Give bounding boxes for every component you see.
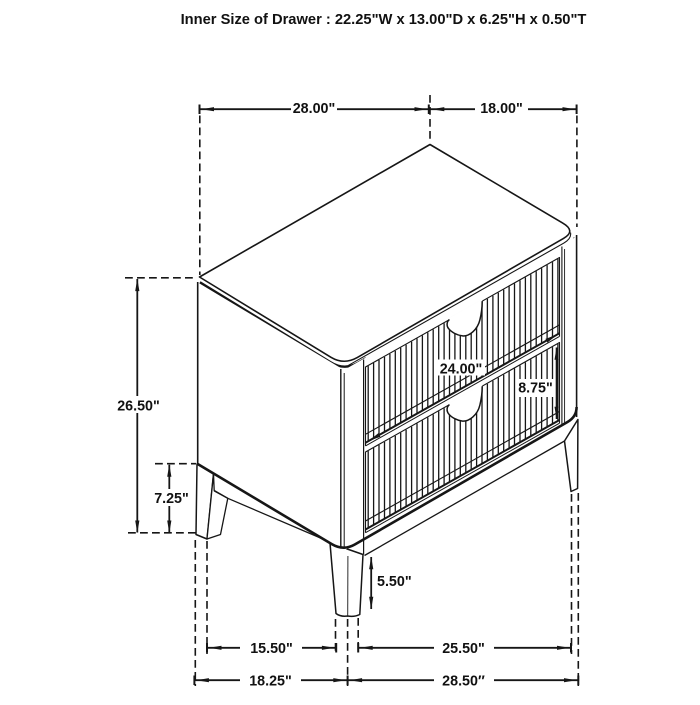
svg-text:Inner Size of Drawer : 22.25"W: Inner Size of Drawer : 22.25"W x 13.00"D… — [181, 12, 587, 28]
svg-text:24.00": 24.00" — [440, 362, 483, 378]
svg-text:18.25": 18.25" — [249, 673, 292, 689]
svg-text:18.00": 18.00" — [480, 101, 523, 117]
svg-text:26.50": 26.50" — [117, 399, 160, 415]
svg-text:8.75": 8.75" — [518, 381, 553, 397]
svg-text:7.25": 7.25" — [154, 491, 189, 507]
svg-text:5.50": 5.50" — [377, 574, 412, 590]
svg-text:25.50": 25.50" — [442, 641, 485, 657]
svg-text:15.50": 15.50" — [250, 641, 293, 657]
svg-text:28.50″: 28.50″ — [442, 673, 485, 689]
svg-text:28.00": 28.00" — [293, 101, 336, 117]
